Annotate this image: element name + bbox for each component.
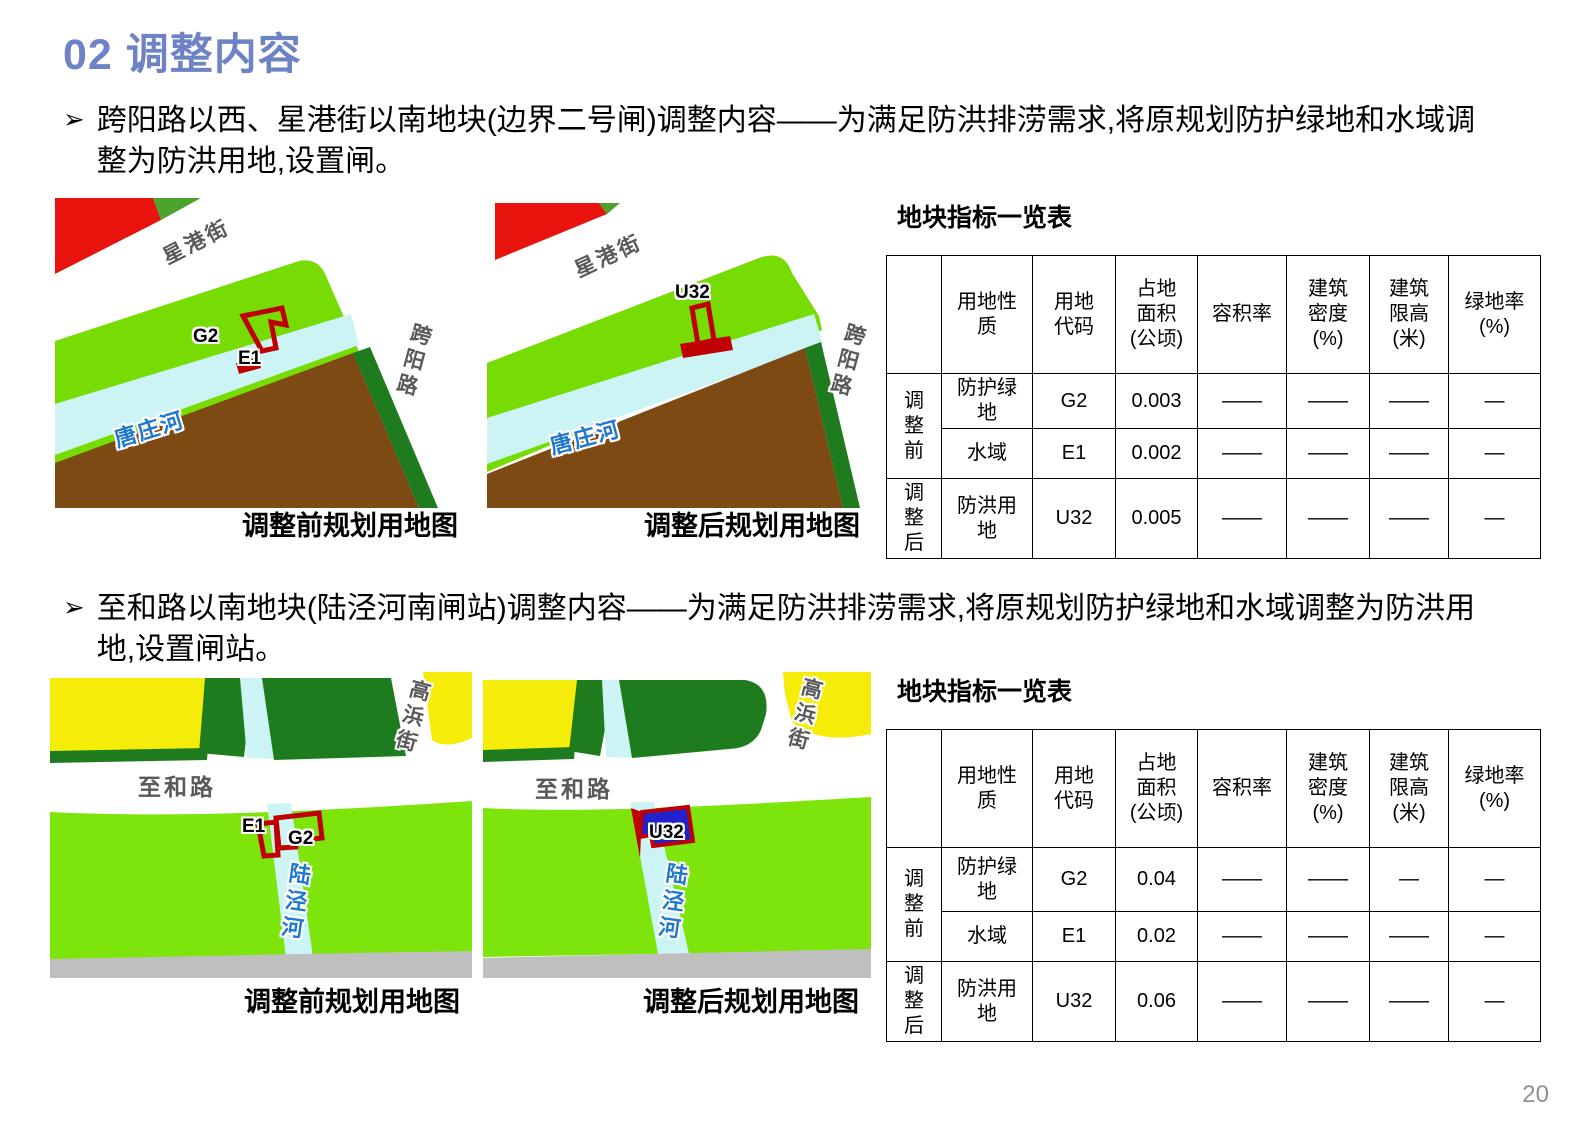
table2-row-g2: 调整前 防护绿地 G2 0.04 —— —— — — bbox=[887, 848, 1541, 912]
table2-title: 地块指标一览表 bbox=[897, 672, 1542, 708]
table1-header-row: 用地性质 用地代码 占地面积(公顷) 容积率 建筑密度(%) 建筑限高(米) 绿… bbox=[887, 256, 1541, 374]
map-before-tangzhuang: 星港街 唐庄河 G2 E1 跨阳路 bbox=[55, 198, 470, 508]
page-number: 20 bbox=[1522, 1081, 1549, 1109]
table1-header-code: 用地代码 bbox=[1033, 256, 1116, 374]
bullet-text-1: 跨阳路以西、星港街以南地块(边界二号闸)调整内容——为满足防洪排涝需求,将原规划… bbox=[97, 100, 1497, 183]
table2-header-far: 容积率 bbox=[1198, 730, 1287, 848]
table1-u32-height: —— bbox=[1370, 479, 1449, 559]
table1-header-height: 建筑限高(米) bbox=[1370, 256, 1449, 374]
table1-e1-far: —— bbox=[1198, 429, 1287, 479]
table1-row-u32: 调整后 防洪用地 U32 0.005 —— —— —— — bbox=[887, 479, 1541, 559]
map-before-lujing: 高浜街 至和路 E1 G2 陆泾河 bbox=[50, 672, 472, 978]
table2-row-u32: 调整后 防洪用地 U32 0.06 —— —— —— — bbox=[887, 962, 1541, 1042]
table2-g2-height: — bbox=[1370, 848, 1449, 912]
indicator-table-section-1: 地块指标一览表 用地性质 用地代码 占地面积(公顷) 容积率 建筑密度(%) 建… bbox=[886, 198, 1542, 559]
table2-header-code: 用地代码 bbox=[1033, 730, 1116, 848]
table1-g2-height: —— bbox=[1370, 374, 1449, 429]
table2-e1-area: 0.02 bbox=[1116, 912, 1198, 962]
table1-u32-far: —— bbox=[1198, 479, 1287, 559]
table2-e1-code: E1 bbox=[1033, 912, 1116, 962]
table2-row-e1: 水域 E1 0.02 —— —— —— — bbox=[887, 912, 1541, 962]
table2-g2-green: — bbox=[1449, 848, 1541, 912]
table1-header-blank bbox=[887, 256, 942, 374]
table1-header-density: 建筑密度(%) bbox=[1287, 256, 1370, 374]
table2-u32-green: — bbox=[1449, 962, 1541, 1042]
table1-e1-height: —— bbox=[1370, 429, 1449, 479]
bullet-arrow-icon: ➢ bbox=[63, 588, 85, 627]
table2-g2-code: G2 bbox=[1033, 848, 1116, 912]
table1-g2-name: 防护绿地 bbox=[942, 374, 1033, 429]
bullet-paragraph-1: ➢ 跨阳路以西、星港街以南地块(边界二号闸)调整内容——为满足防洪排涝需求,将原… bbox=[63, 100, 1497, 183]
table1-e1-density: —— bbox=[1287, 429, 1370, 479]
map1-g2-label: G2 bbox=[193, 326, 218, 348]
table1-u32-code: U32 bbox=[1033, 479, 1116, 559]
table2-header-area: 占地面积(公顷) bbox=[1116, 730, 1198, 848]
map4-yellow-parcel-left bbox=[483, 680, 581, 755]
table2-header-row: 用地性质 用地代码 占地面积(公顷) 容积率 建筑密度(%) 建筑限高(米) 绿… bbox=[887, 730, 1541, 848]
map3-yellow-parcel-left bbox=[50, 678, 213, 755]
map3-g2-label: G2 bbox=[288, 828, 313, 850]
table2-e1-green: — bbox=[1449, 912, 1541, 962]
table1-title: 地块指标一览表 bbox=[897, 198, 1542, 234]
map-after-tangzhuang: 星港街 U32 唐庄河 跨阳路 bbox=[487, 198, 872, 508]
map1-caption: 调整前规划用地图 bbox=[55, 504, 470, 543]
map3-road-label: 至和路 bbox=[138, 768, 216, 802]
table1-u32-density: —— bbox=[1287, 479, 1370, 559]
table1-e1-code: E1 bbox=[1033, 429, 1116, 479]
page-title: 02 调整内容 bbox=[63, 20, 302, 82]
map2-caption: 调整后规划用地图 bbox=[487, 504, 872, 543]
table2-g2-density: —— bbox=[1287, 848, 1370, 912]
table2-header-green-rate: 绿地率(%) bbox=[1449, 730, 1541, 848]
table1-u32-area: 0.005 bbox=[1116, 479, 1198, 559]
table1-u32-name: 防洪用地 bbox=[942, 479, 1033, 559]
table2-g2-far: —— bbox=[1198, 848, 1287, 912]
map2-canvas bbox=[487, 198, 872, 508]
bullet-paragraph-2: ➢ 至和路以南地块(陆泾河南闸站)调整内容——为满足防洪排涝需求,将原规划防护绿… bbox=[63, 588, 1497, 671]
table2-g2-name: 防护绿地 bbox=[942, 848, 1033, 912]
bullet-text-2: 至和路以南地块(陆泾河南闸站)调整内容——为满足防洪排涝需求,将原规划防护绿地和… bbox=[97, 588, 1497, 671]
table2-e1-name: 水域 bbox=[942, 912, 1033, 962]
table1-e1-name: 水域 bbox=[942, 429, 1033, 479]
table2-group-before: 调整前 bbox=[887, 848, 942, 962]
table1-row-g2: 调整前 防护绿地 G2 0.003 —— —— —— — bbox=[887, 374, 1541, 429]
table1-e1-green: — bbox=[1449, 429, 1541, 479]
table2-e1-far: —— bbox=[1198, 912, 1287, 962]
table2-u32-code: U32 bbox=[1033, 962, 1116, 1042]
table1-row-e1: 水域 E1 0.002 —— —— —— — bbox=[887, 429, 1541, 479]
table1-group-after: 调整后 bbox=[887, 479, 942, 559]
map3-e1-label: E1 bbox=[242, 816, 265, 838]
table1-g2-area: 0.003 bbox=[1116, 374, 1198, 429]
table1-g2-density: —— bbox=[1287, 374, 1370, 429]
table2-u32-density: —— bbox=[1287, 962, 1370, 1042]
table2-header-density: 建筑密度(%) bbox=[1287, 730, 1370, 848]
table2-u32-area: 0.06 bbox=[1116, 962, 1198, 1042]
map3-dark-green-parcel-right bbox=[262, 678, 406, 760]
table1-g2-far: —— bbox=[1198, 374, 1287, 429]
map4-u32-label: U32 bbox=[649, 822, 684, 844]
map4-road-label: 至和路 bbox=[535, 770, 613, 804]
indicator-table-1: 用地性质 用地代码 占地面积(公顷) 容积率 建筑密度(%) 建筑限高(米) 绿… bbox=[886, 255, 1541, 559]
table1-group-before: 调整前 bbox=[887, 374, 942, 479]
map1-e1-label: E1 bbox=[238, 348, 261, 370]
slide: 02 调整内容 ➢ 跨阳路以西、星港街以南地块(边界二号闸)调整内容——为满足防… bbox=[0, 0, 1587, 1123]
table2-u32-height: —— bbox=[1370, 962, 1449, 1042]
table2-u32-far: —— bbox=[1198, 962, 1287, 1042]
map4-caption: 调整后规划用地图 bbox=[483, 980, 871, 1019]
table1-u32-green: — bbox=[1449, 479, 1541, 559]
table1-header-green-rate: 绿地率(%) bbox=[1449, 256, 1541, 374]
table1-e1-area: 0.002 bbox=[1116, 429, 1198, 479]
table2-u32-name: 防洪用地 bbox=[942, 962, 1033, 1042]
table2-group-after: 调整后 bbox=[887, 962, 942, 1042]
table1-g2-green: — bbox=[1449, 374, 1541, 429]
table2-e1-height: —— bbox=[1370, 912, 1449, 962]
table1-header-land-use: 用地性质 bbox=[942, 256, 1033, 374]
indicator-table-2: 用地性质 用地代码 占地面积(公顷) 容积率 建筑密度(%) 建筑限高(米) 绿… bbox=[886, 729, 1541, 1042]
map-after-lujing: 高浜街 至和路 U32 陆泾河 bbox=[483, 672, 871, 978]
table1-g2-code: G2 bbox=[1033, 374, 1116, 429]
map3-caption: 调整前规划用地图 bbox=[50, 980, 472, 1019]
map2-u32-label: U32 bbox=[675, 282, 710, 304]
bullet-arrow-icon: ➢ bbox=[63, 100, 85, 139]
table2-header-blank bbox=[887, 730, 942, 848]
table1-header-area: 占地面积(公顷) bbox=[1116, 256, 1198, 374]
table2-g2-area: 0.04 bbox=[1116, 848, 1198, 912]
indicator-table-section-2: 地块指标一览表 用地性质 用地代码 占地面积(公顷) 容积率 建筑密度(%) 建… bbox=[886, 672, 1542, 1042]
table1-header-far: 容积率 bbox=[1198, 256, 1287, 374]
table2-e1-density: —— bbox=[1287, 912, 1370, 962]
table2-header-land-use: 用地性质 bbox=[942, 730, 1033, 848]
table2-header-height: 建筑限高(米) bbox=[1370, 730, 1449, 848]
